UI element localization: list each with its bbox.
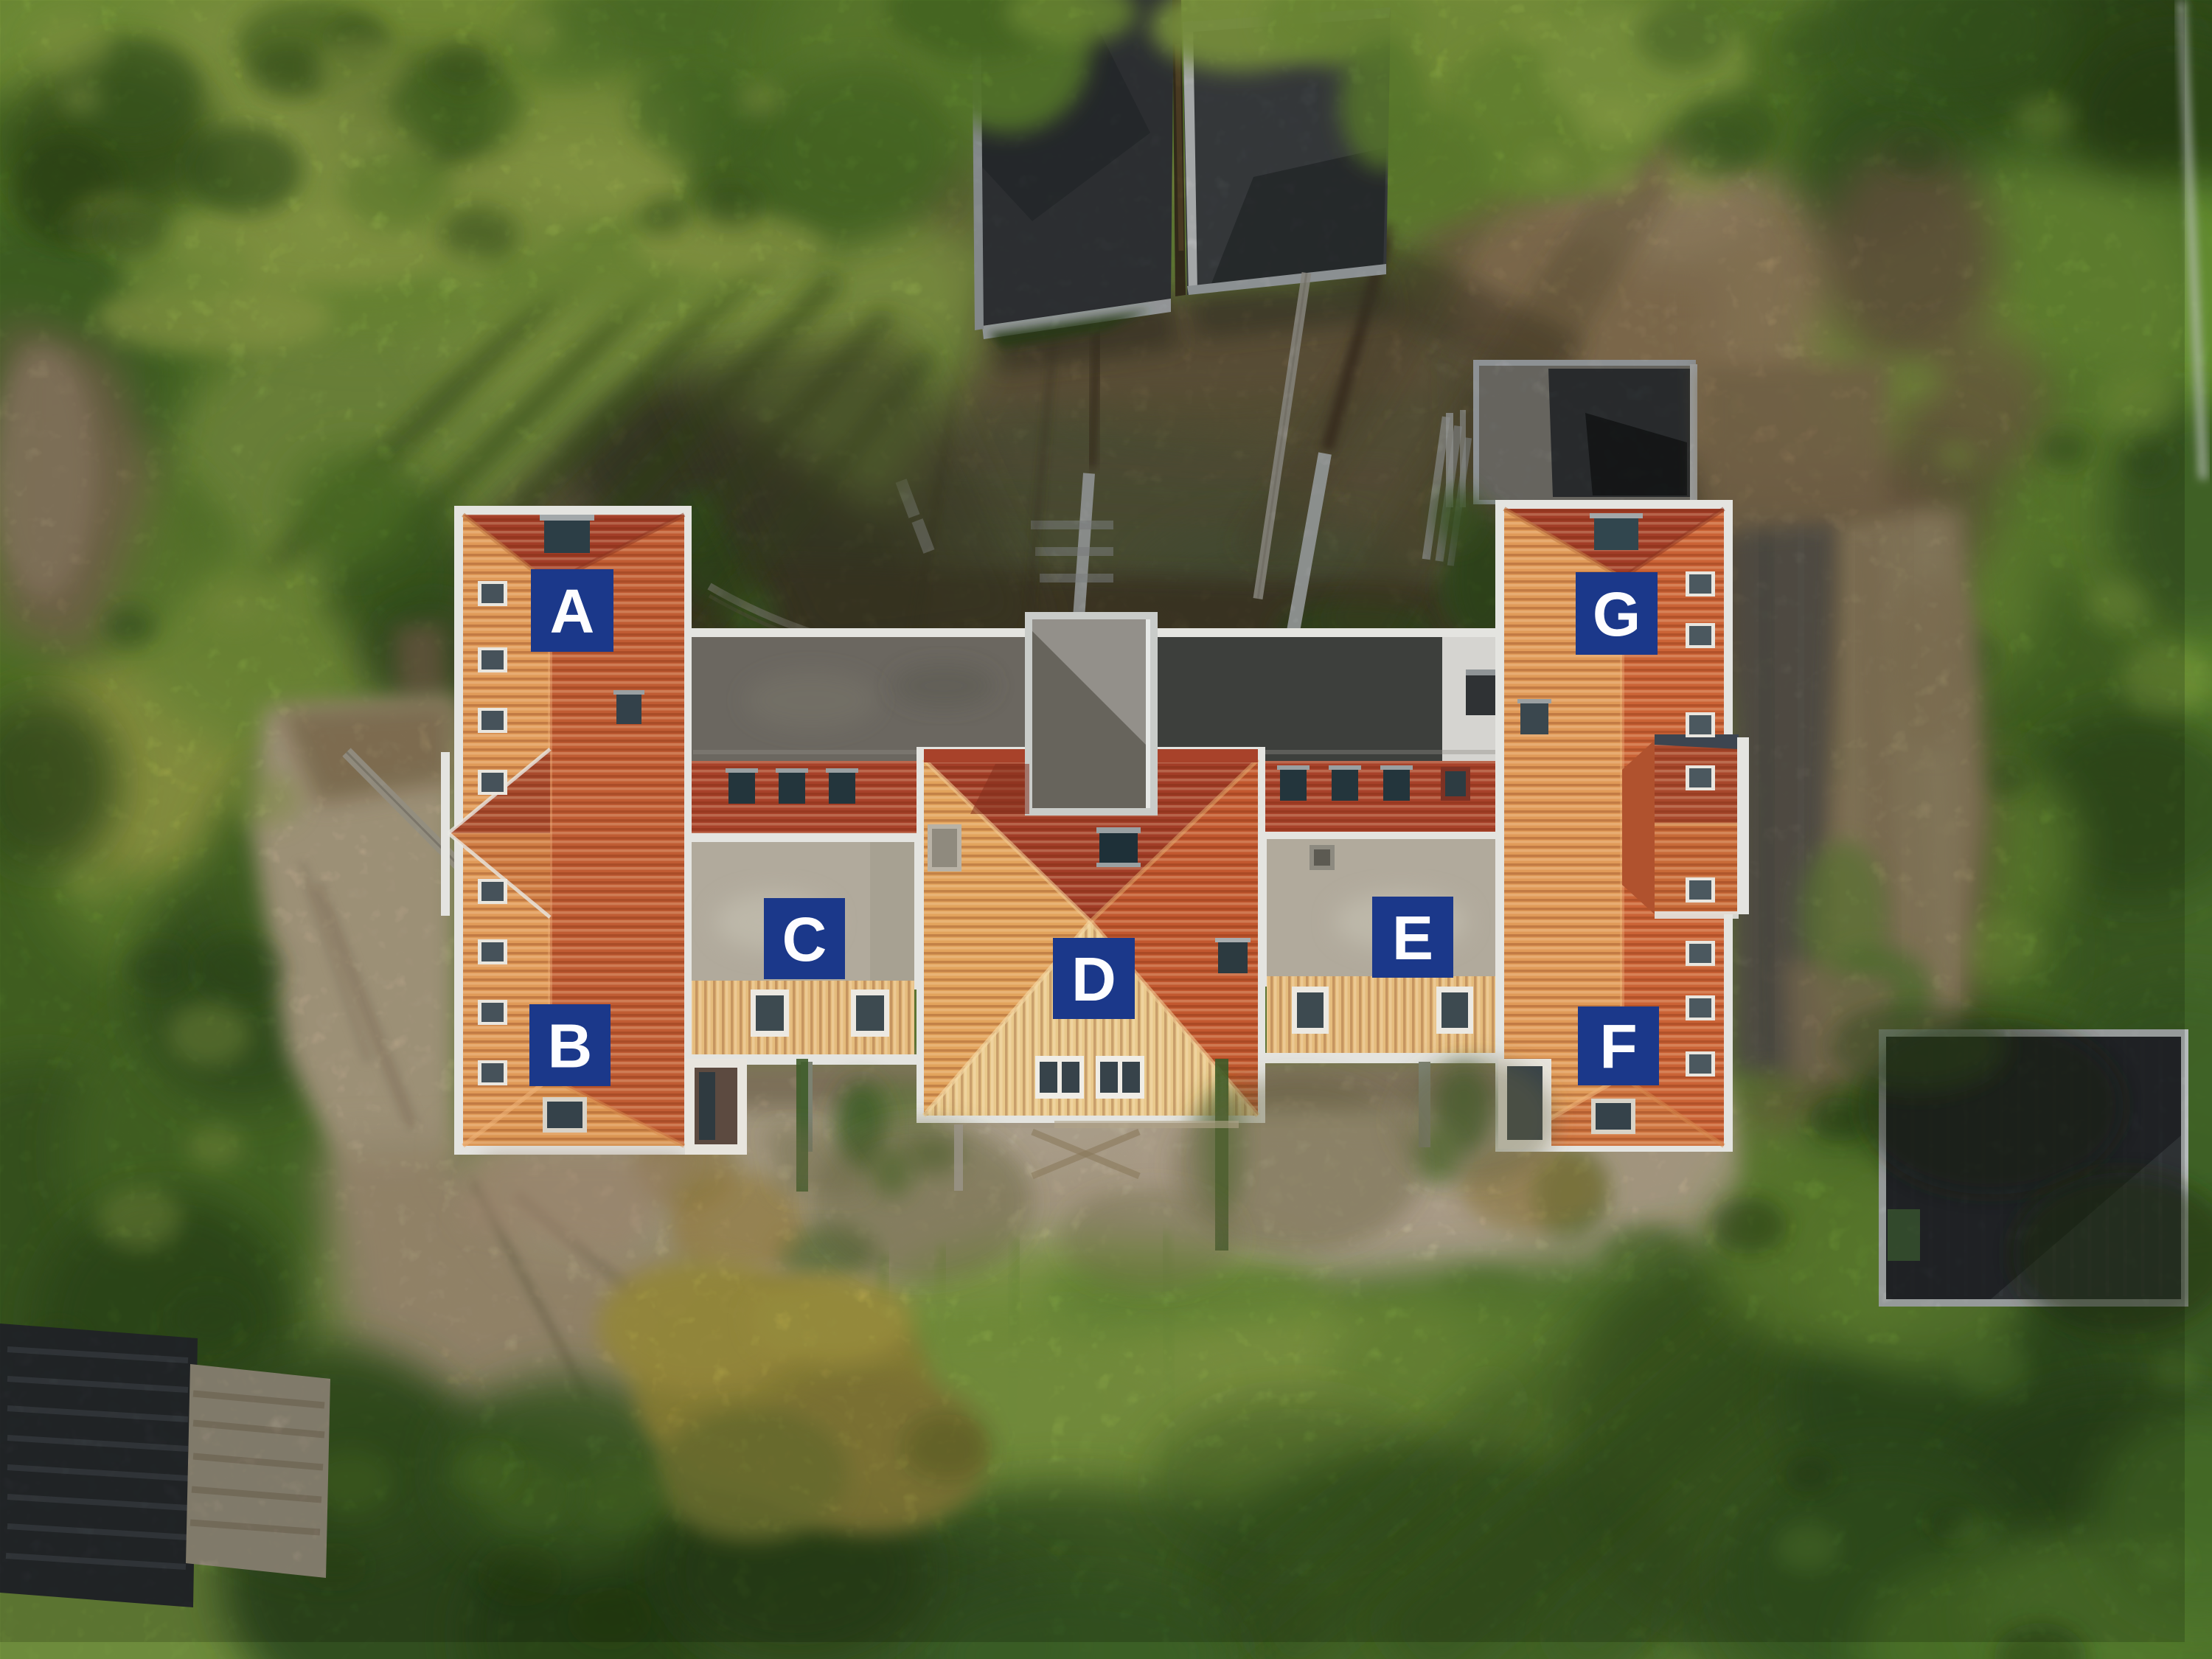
svg-text:C: C [782,905,827,974]
svg-text:F: F [1599,1012,1637,1082]
svg-text:A: A [550,577,595,646]
svg-text:D: D [1071,945,1116,1014]
svg-text:E: E [1392,903,1433,973]
svg-text:B: B [548,1012,593,1081]
svg-text:G: G [1593,580,1641,649]
